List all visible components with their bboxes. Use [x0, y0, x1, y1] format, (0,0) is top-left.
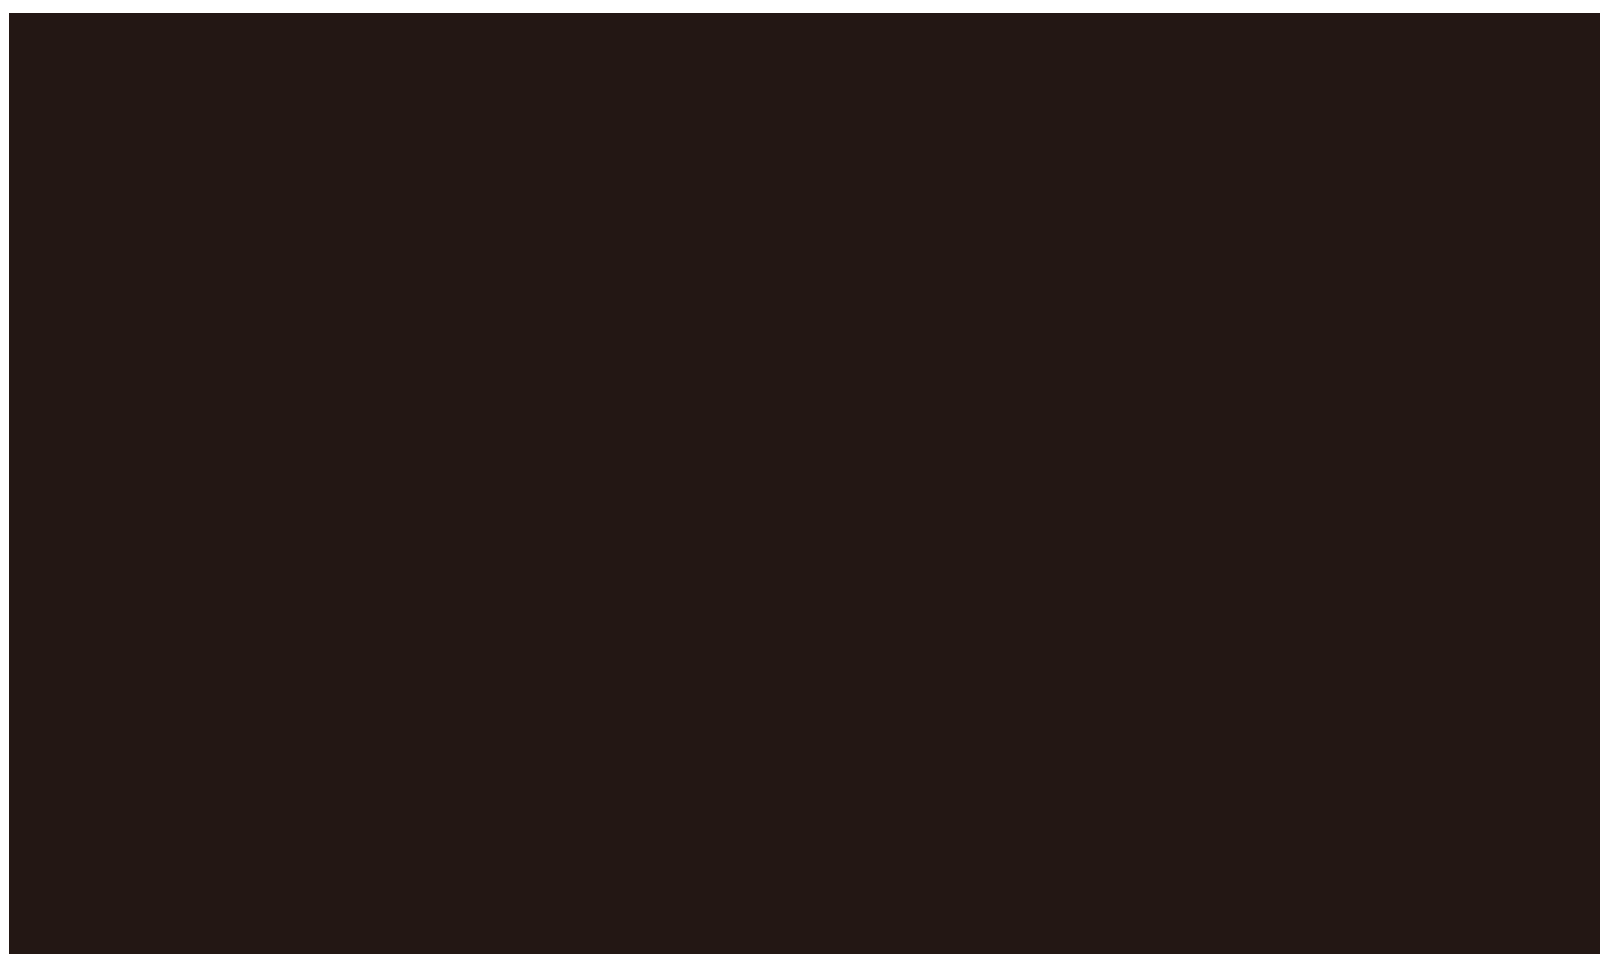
blank-dark-screen [9, 13, 1600, 954]
page-background [0, 0, 1614, 974]
